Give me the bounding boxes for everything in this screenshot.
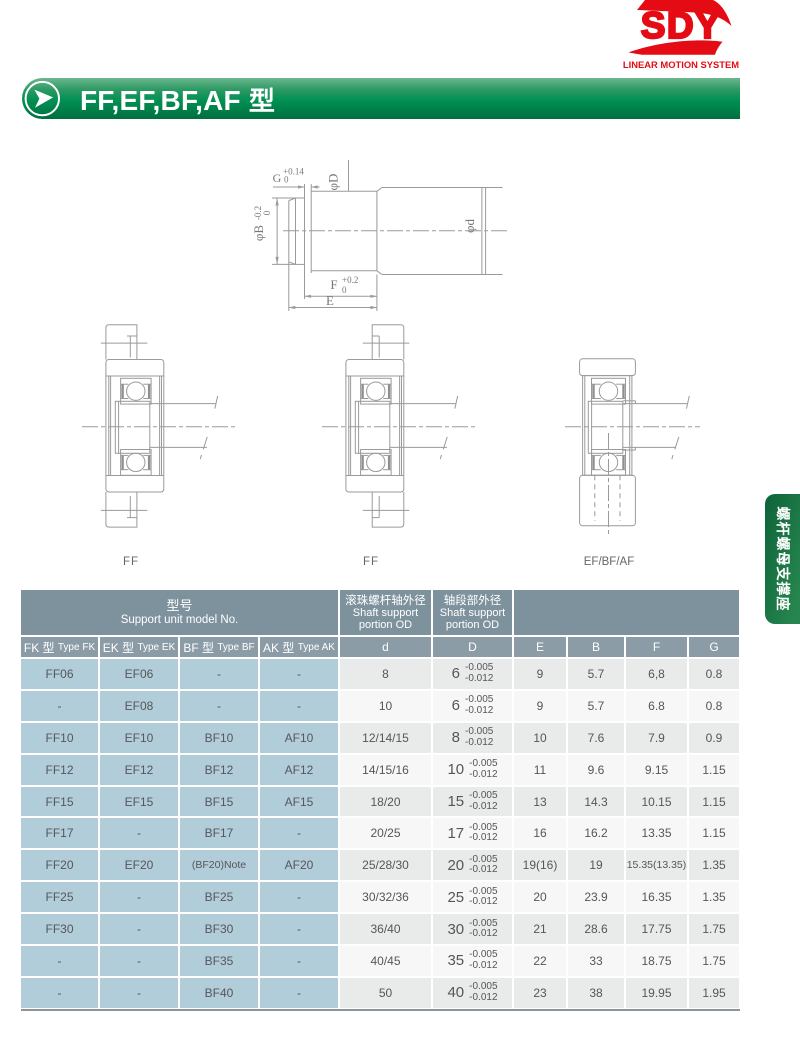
svg-text:-0.2: -0.2 [253,206,263,220]
svg-text:φD: φD [326,174,341,191]
svg-text:EF/BF/AF: EF/BF/AF [584,556,634,568]
svg-text:0: 0 [342,285,347,295]
svg-text:0: 0 [262,210,272,215]
svg-text:SDY: SDY [641,5,722,46]
svg-text:φB: φB [251,225,266,242]
svg-text:0: 0 [284,175,289,185]
svg-text:+0.2: +0.2 [342,275,358,285]
svg-text:E: E [326,293,334,308]
svg-text:LINEAR MOTION SYSTEM: LINEAR MOTION SYSTEM [623,59,739,70]
svg-text:φd: φd [462,219,477,234]
svg-text:FF: FF [123,556,139,568]
svg-text:G: G [273,171,282,185]
svg-text:F: F [330,277,337,292]
